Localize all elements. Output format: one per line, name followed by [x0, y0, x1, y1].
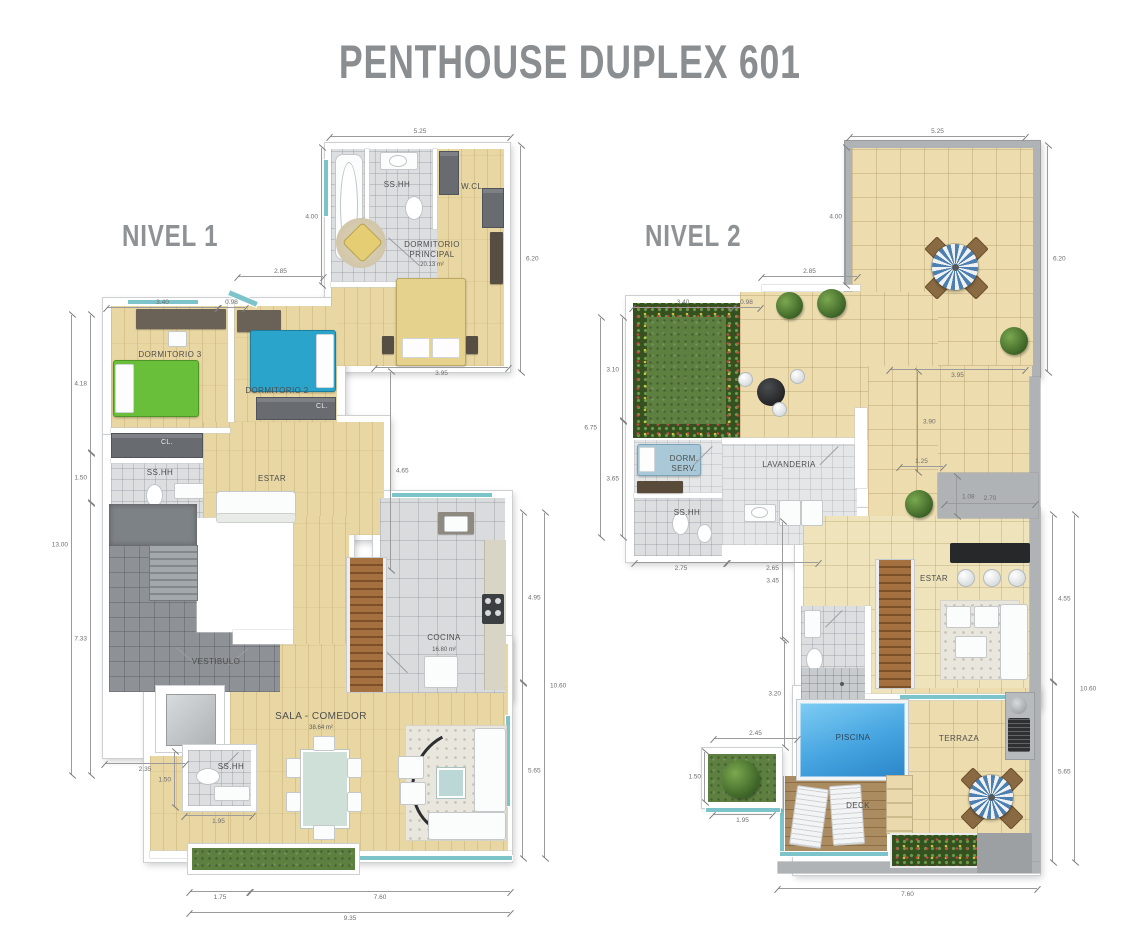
room-label-wcl: W.CL.	[461, 182, 485, 191]
sink-icon	[444, 516, 468, 532]
armchair-icon	[398, 756, 424, 779]
dimension: 6.20	[1047, 146, 1048, 372]
sink-bowl-icon	[751, 507, 768, 518]
room-label-cl: CL.	[161, 439, 173, 446]
dimension: 2.75	[635, 562, 727, 563]
burner-icon	[485, 598, 491, 604]
n2-bath-wall	[865, 606, 871, 700]
chair-icon	[286, 758, 301, 778]
duplex-stairs-icon	[347, 558, 386, 692]
dimension: 3.40	[107, 307, 218, 308]
room-label-ssh-social: SS.HH	[218, 762, 244, 771]
room-label-dorm3: DORMITORIO 3	[138, 350, 201, 359]
dimension: 1.95	[713, 814, 772, 815]
dimension: 3.20	[784, 640, 785, 747]
room-label-vestibulo: VESTIBULO	[192, 657, 241, 666]
dimension: 4.18	[90, 315, 91, 453]
sofa-icon	[1000, 604, 1028, 680]
armchair-icon	[400, 782, 426, 805]
desk-icon	[136, 309, 226, 329]
pool-steps-icon	[887, 776, 912, 833]
dimension: 1.08	[956, 477, 957, 516]
coffee-table-icon	[437, 768, 465, 798]
chair-icon	[347, 792, 362, 812]
area-label-sala: 38.64 m²	[309, 725, 333, 731]
dimension: 7.33	[90, 503, 91, 775]
dimension: 1.50	[704, 752, 705, 802]
chair-icon	[168, 331, 187, 347]
bush-icon	[817, 289, 846, 318]
pillow-icon	[639, 447, 655, 472]
page-title: PENTHOUSE DUPLEX 601	[339, 34, 801, 89]
room-label-ssh-hall: SS.HH	[147, 468, 173, 477]
page-title-wrap: PENTHOUSE DUPLEX 601	[0, 34, 1140, 89]
sink-icon	[174, 483, 204, 499]
area-label-cocina: 16.80 m²	[432, 647, 456, 653]
room-label-cocina: COCINA	[427, 633, 461, 642]
pouf-icon	[738, 372, 753, 387]
planter-edge	[706, 808, 780, 812]
dimension: 6.20	[520, 146, 521, 372]
dimension: 3.95	[890, 369, 1025, 370]
deck-edge	[780, 852, 888, 856]
dimension: 2.45	[714, 738, 797, 739]
bbq-sink-icon	[1010, 697, 1027, 714]
dresser-icon	[637, 481, 683, 493]
pillow-icon	[115, 364, 134, 413]
dimension: 1.95	[185, 815, 252, 816]
n2-garden	[633, 303, 740, 438]
room-label-cl: CL.	[316, 403, 328, 410]
armchair-icon	[974, 606, 999, 628]
desk-icon	[237, 310, 281, 332]
dimension: 3.10	[622, 318, 623, 421]
dimension: 4.95	[522, 513, 523, 683]
dimension: 0.98	[733, 307, 760, 308]
room-label-dorm-serv: DORM. SERV.	[666, 454, 702, 474]
garden-grass	[647, 317, 726, 424]
burner-icon	[495, 598, 501, 604]
toilet-icon	[405, 196, 423, 220]
room-label-master: DORMITORIO PRINCIPAL	[389, 240, 475, 260]
room-label-deck: DECK	[846, 801, 870, 810]
desk-icon	[490, 232, 503, 284]
lounger-icon	[829, 784, 865, 846]
n1-corridor-floor	[293, 516, 349, 650]
room-label-terraza: TERRAZA	[939, 734, 979, 743]
level2-label: NIVEL 2	[645, 218, 741, 254]
bar-stool-icon	[957, 569, 975, 587]
dimension: 3.95	[375, 367, 508, 368]
room-label-ssh: SS.HH	[674, 508, 700, 517]
n1-bath-top-wall	[111, 458, 203, 463]
n2-slab	[977, 833, 1032, 873]
toilet-icon	[196, 768, 220, 785]
sink-icon	[804, 610, 821, 638]
n1-void-area	[197, 518, 293, 632]
sink-icon	[214, 786, 250, 801]
dimension: 2.65	[727, 562, 818, 563]
drain-icon	[840, 682, 844, 686]
bush-icon	[905, 490, 933, 518]
pillow-icon	[432, 338, 460, 358]
bush-icon	[722, 760, 760, 798]
dimension: 1.50	[174, 752, 175, 807]
dimension: 1.25	[900, 466, 943, 467]
sofa-icon	[428, 812, 506, 840]
umbrella-pole-icon	[952, 264, 959, 271]
n1-wcl-wall	[433, 149, 437, 229]
n1-bath-window	[324, 160, 328, 216]
dimension: 0.98	[218, 307, 245, 308]
sofa-icon	[474, 728, 506, 812]
dimension: 1.75	[190, 891, 250, 892]
dryer-icon	[801, 500, 823, 526]
n1-kitchen-window	[392, 493, 492, 497]
nightstand-icon	[382, 336, 394, 354]
dimension: 2.85	[762, 276, 857, 277]
n1-dorm-divider-wall	[228, 300, 234, 422]
kitchen-island-icon	[424, 656, 458, 688]
flower-planter	[892, 835, 977, 866]
room-label-dorm2: DORMITORIO 2	[245, 386, 308, 395]
dimension: 9.35	[190, 912, 510, 913]
room-label-ssh-master: SS.HH	[384, 180, 410, 189]
room-label-estar2: ESTAR	[920, 574, 948, 583]
dimension: 6.75	[600, 318, 601, 537]
dimension: 3.40	[633, 307, 733, 308]
burner-icon	[485, 610, 491, 616]
level1-label: NIVEL 1	[122, 218, 218, 254]
room-label-piscina: PISCINA	[836, 733, 871, 742]
stair-landing	[109, 504, 197, 546]
nightstand-icon	[466, 336, 478, 354]
area-label-master: 20.13 m²	[420, 262, 444, 268]
room-label-estar: ESTAR	[258, 474, 286, 483]
pillow-icon	[316, 334, 334, 388]
dining-table-icon	[301, 750, 349, 828]
pillow-icon	[402, 338, 430, 358]
planter-grass	[192, 848, 355, 870]
dimension: 2.85	[238, 276, 323, 277]
pouf-icon	[772, 402, 787, 417]
room-label-lavanderia: LAVANDERIA	[762, 460, 816, 469]
shower-icon	[801, 668, 865, 700]
room-label-sala: SALA - COMEDOR	[275, 711, 367, 722]
grill-icon	[1008, 718, 1030, 752]
dimension: 3.65	[622, 421, 623, 537]
dimension: 3.45	[782, 522, 783, 640]
duplex-stairs-icon	[876, 560, 914, 688]
dimension: 4.55	[1052, 515, 1053, 682]
wardrobe-icon	[439, 151, 459, 195]
dimension: 7.60	[778, 888, 1037, 889]
pouf-icon	[790, 369, 805, 384]
chair-icon	[313, 825, 335, 840]
dimension: 2.70	[945, 503, 1035, 504]
chair-icon	[286, 792, 301, 812]
dimension: 2.35	[105, 763, 185, 764]
bar-stool-icon	[1008, 569, 1026, 587]
floorplan-canvas: PENTHOUSE DUPLEX 601 NIVEL 1 NIVEL 2	[0, 0, 1140, 950]
n2-right-parapet	[1030, 377, 1040, 873]
bidet-icon	[697, 524, 712, 543]
closet-icon	[111, 433, 203, 458]
wardrobe-icon	[482, 188, 504, 228]
dimension: 4.00	[321, 148, 322, 285]
dimension: 4.65	[390, 372, 391, 570]
dimension: 4.00	[845, 148, 846, 285]
dimension: 1.50	[90, 453, 91, 503]
bush-icon	[1000, 327, 1028, 355]
bar-counter-icon	[950, 543, 1030, 563]
n1-balcony-rail	[358, 856, 512, 860]
n2-lavanderia-right-wall	[855, 408, 867, 488]
armchair-icon	[946, 606, 971, 628]
sink-bowl-icon	[389, 155, 407, 167]
n1-void-area-2	[233, 630, 293, 644]
dimension: 3.90	[917, 372, 918, 472]
n2-ssh-top-wall	[634, 493, 722, 498]
burner-icon	[495, 610, 501, 616]
dimension: 13.00	[71, 315, 72, 775]
dimension: 5.25	[330, 136, 510, 137]
dimension: 10.60	[1074, 515, 1075, 862]
building-stairs-icon	[150, 546, 197, 600]
elevator-car-icon	[166, 694, 216, 746]
sofa-seat-icon	[216, 513, 296, 523]
dimension: 10.60	[544, 513, 545, 858]
umbrella-pole-icon	[988, 794, 995, 801]
dimension: 5.65	[1052, 682, 1053, 862]
dimension: 7.60	[250, 891, 510, 892]
chair-icon	[313, 736, 335, 751]
dimension: 5.65	[522, 683, 523, 858]
bush-icon	[776, 292, 803, 319]
n2-lavanderia-top-wall	[722, 438, 862, 444]
coffee-table-icon	[955, 636, 987, 658]
bar-stool-icon	[983, 569, 1001, 587]
chair-icon	[347, 758, 362, 778]
dimension: 5.25	[850, 136, 1025, 137]
